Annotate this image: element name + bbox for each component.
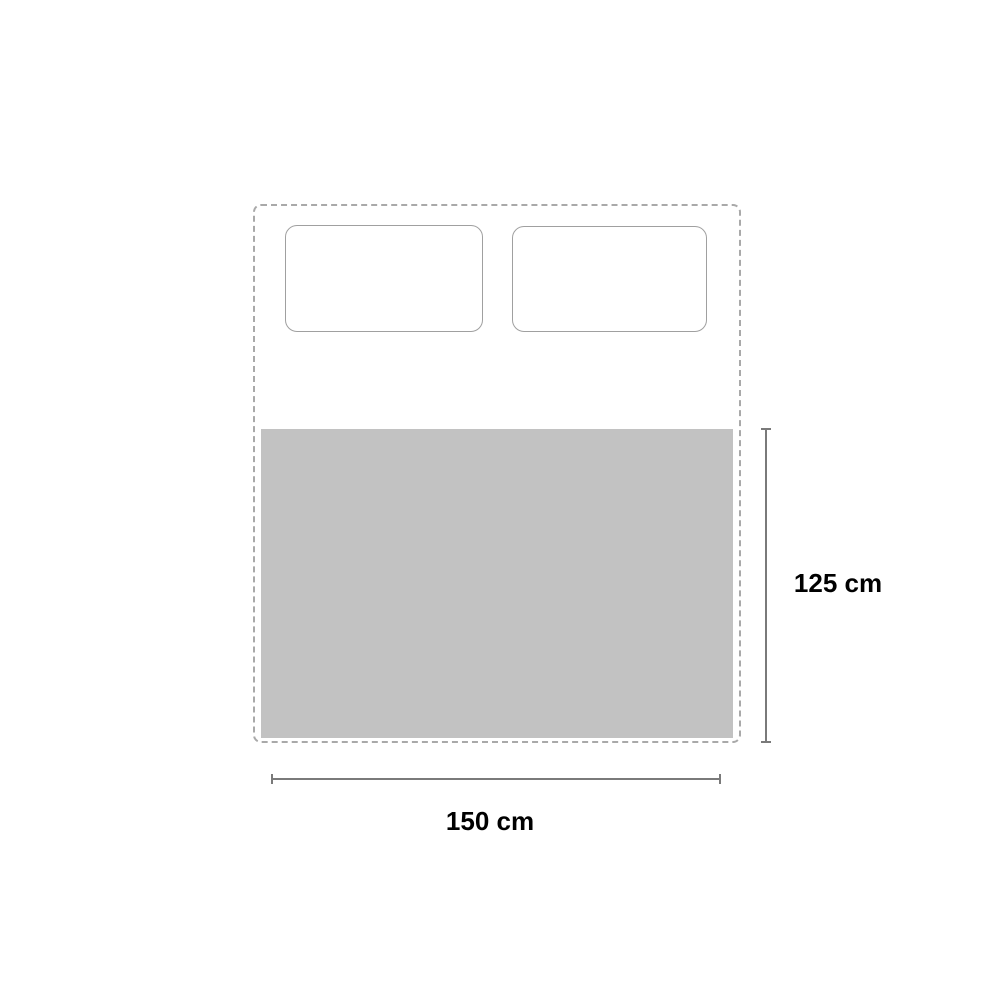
height-dimension-line [761,428,771,743]
width-dimension-cap-right [719,774,721,784]
pillow-right [512,226,707,332]
pillow-left [285,225,483,332]
blanket [261,429,733,738]
height-dimension-rule [765,428,767,743]
width-dimension-rule [271,778,721,780]
blanket-size-diagram: 125 cm 150 cm [0,0,1000,1000]
height-dimension-cap-bottom [761,741,771,743]
width-dimension-line [271,774,721,784]
width-dimension-label: 150 cm [446,808,534,834]
height-dimension-label: 125 cm [794,570,882,596]
